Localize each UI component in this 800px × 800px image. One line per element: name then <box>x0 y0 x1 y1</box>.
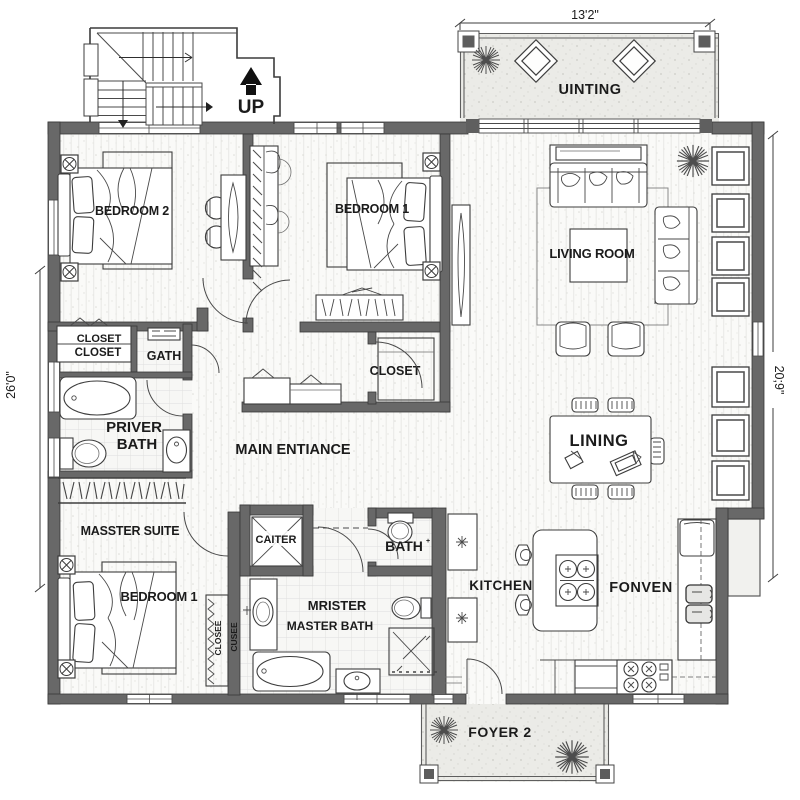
svg-text:CLOSET: CLOSET <box>370 364 421 378</box>
svg-text:CUSEE: CUSEE <box>229 622 239 652</box>
svg-text:MASTER BATH: MASTER BATH <box>287 619 373 633</box>
svg-text:BEDROOM 1: BEDROOM 1 <box>335 202 409 216</box>
svg-text:CLOSET: CLOSET <box>77 333 122 345</box>
svg-text:LINING: LINING <box>570 432 629 450</box>
svg-text:PRIVER: PRIVER <box>106 419 162 436</box>
svg-text:13'2": 13'2" <box>571 8 599 22</box>
svg-text:LIVING ROOM: LIVING ROOM <box>549 246 634 261</box>
svg-text:CLOSET: CLOSET <box>75 347 122 359</box>
svg-text:FONVEN: FONVEN <box>609 580 672 596</box>
svg-text:BEDROOM 2: BEDROOM 2 <box>95 204 169 218</box>
svg-text:MAIN ENTIANCE: MAIN ENTIANCE <box>235 442 351 458</box>
svg-text:MRISTER: MRISTER <box>308 598 367 613</box>
svg-text:MASSTER SUITE: MASSTER SUITE <box>81 524 180 538</box>
svg-text:UP: UP <box>238 97 265 118</box>
svg-text:BEDROOM 1: BEDROOM 1 <box>121 589 198 604</box>
svg-text:GATH: GATH <box>147 349 182 363</box>
svg-text:+: + <box>426 538 430 545</box>
svg-text:20;9": 20;9" <box>772 366 786 395</box>
svg-text:BATH: BATH <box>117 436 158 453</box>
svg-text:BATH: BATH <box>385 538 423 554</box>
svg-text:CLOSEE: CLOSEE <box>213 620 223 655</box>
svg-text:UINTING: UINTING <box>558 82 621 98</box>
svg-text:CAITER: CAITER <box>256 534 297 546</box>
svg-text:26'0": 26'0" <box>4 371 18 399</box>
svg-text:KITCHEN: KITCHEN <box>469 578 533 593</box>
svg-text:FOYER 2: FOYER 2 <box>468 724 531 740</box>
